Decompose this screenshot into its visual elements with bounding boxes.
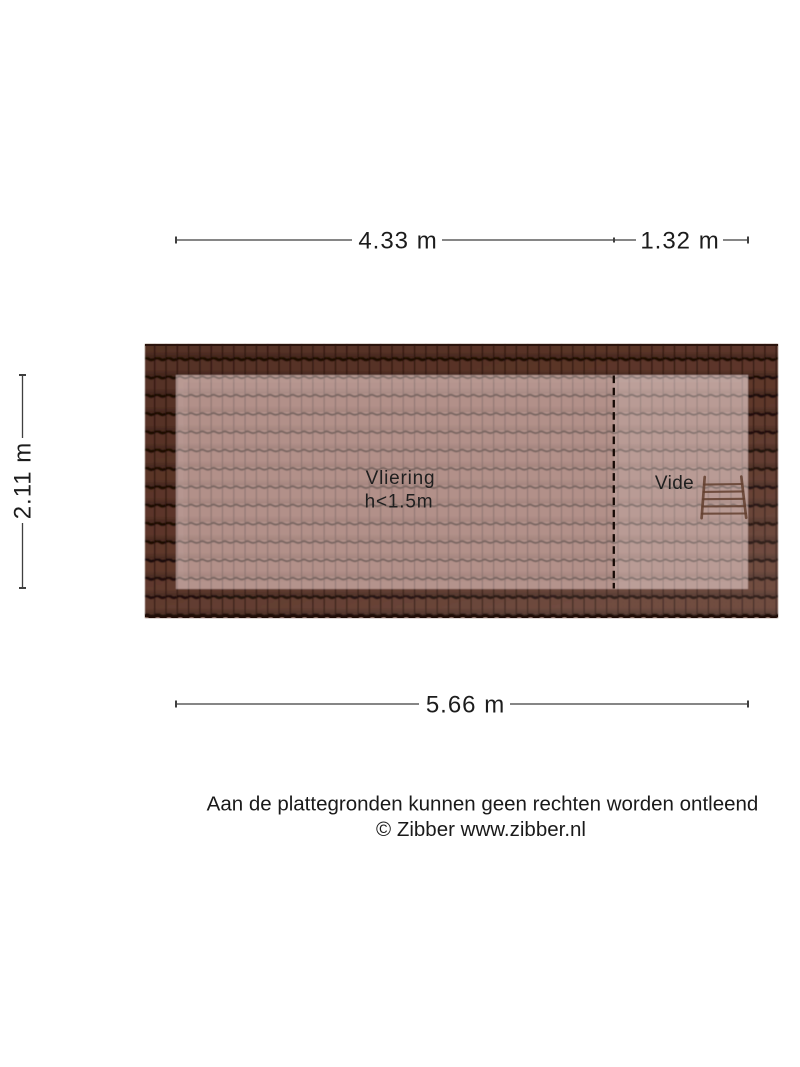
svg-text:4.33 m: 4.33 m	[358, 228, 437, 255]
svg-text:Aan de plattegronden kunnen ge: Aan de plattegronden kunnen geen rechten…	[207, 793, 759, 816]
svg-text:2.11 m: 2.11 m	[10, 442, 37, 520]
svg-text:h<1.5m: h<1.5m	[365, 492, 434, 513]
svg-text:Vliering: Vliering	[366, 468, 436, 489]
svg-text:© Zibber www.zibber.nl: © Zibber www.zibber.nl	[376, 818, 586, 841]
svg-text:1.32 m: 1.32 m	[640, 228, 719, 255]
svg-text:5.66 m: 5.66 m	[426, 692, 505, 719]
svg-text:Vide: Vide	[655, 473, 694, 494]
